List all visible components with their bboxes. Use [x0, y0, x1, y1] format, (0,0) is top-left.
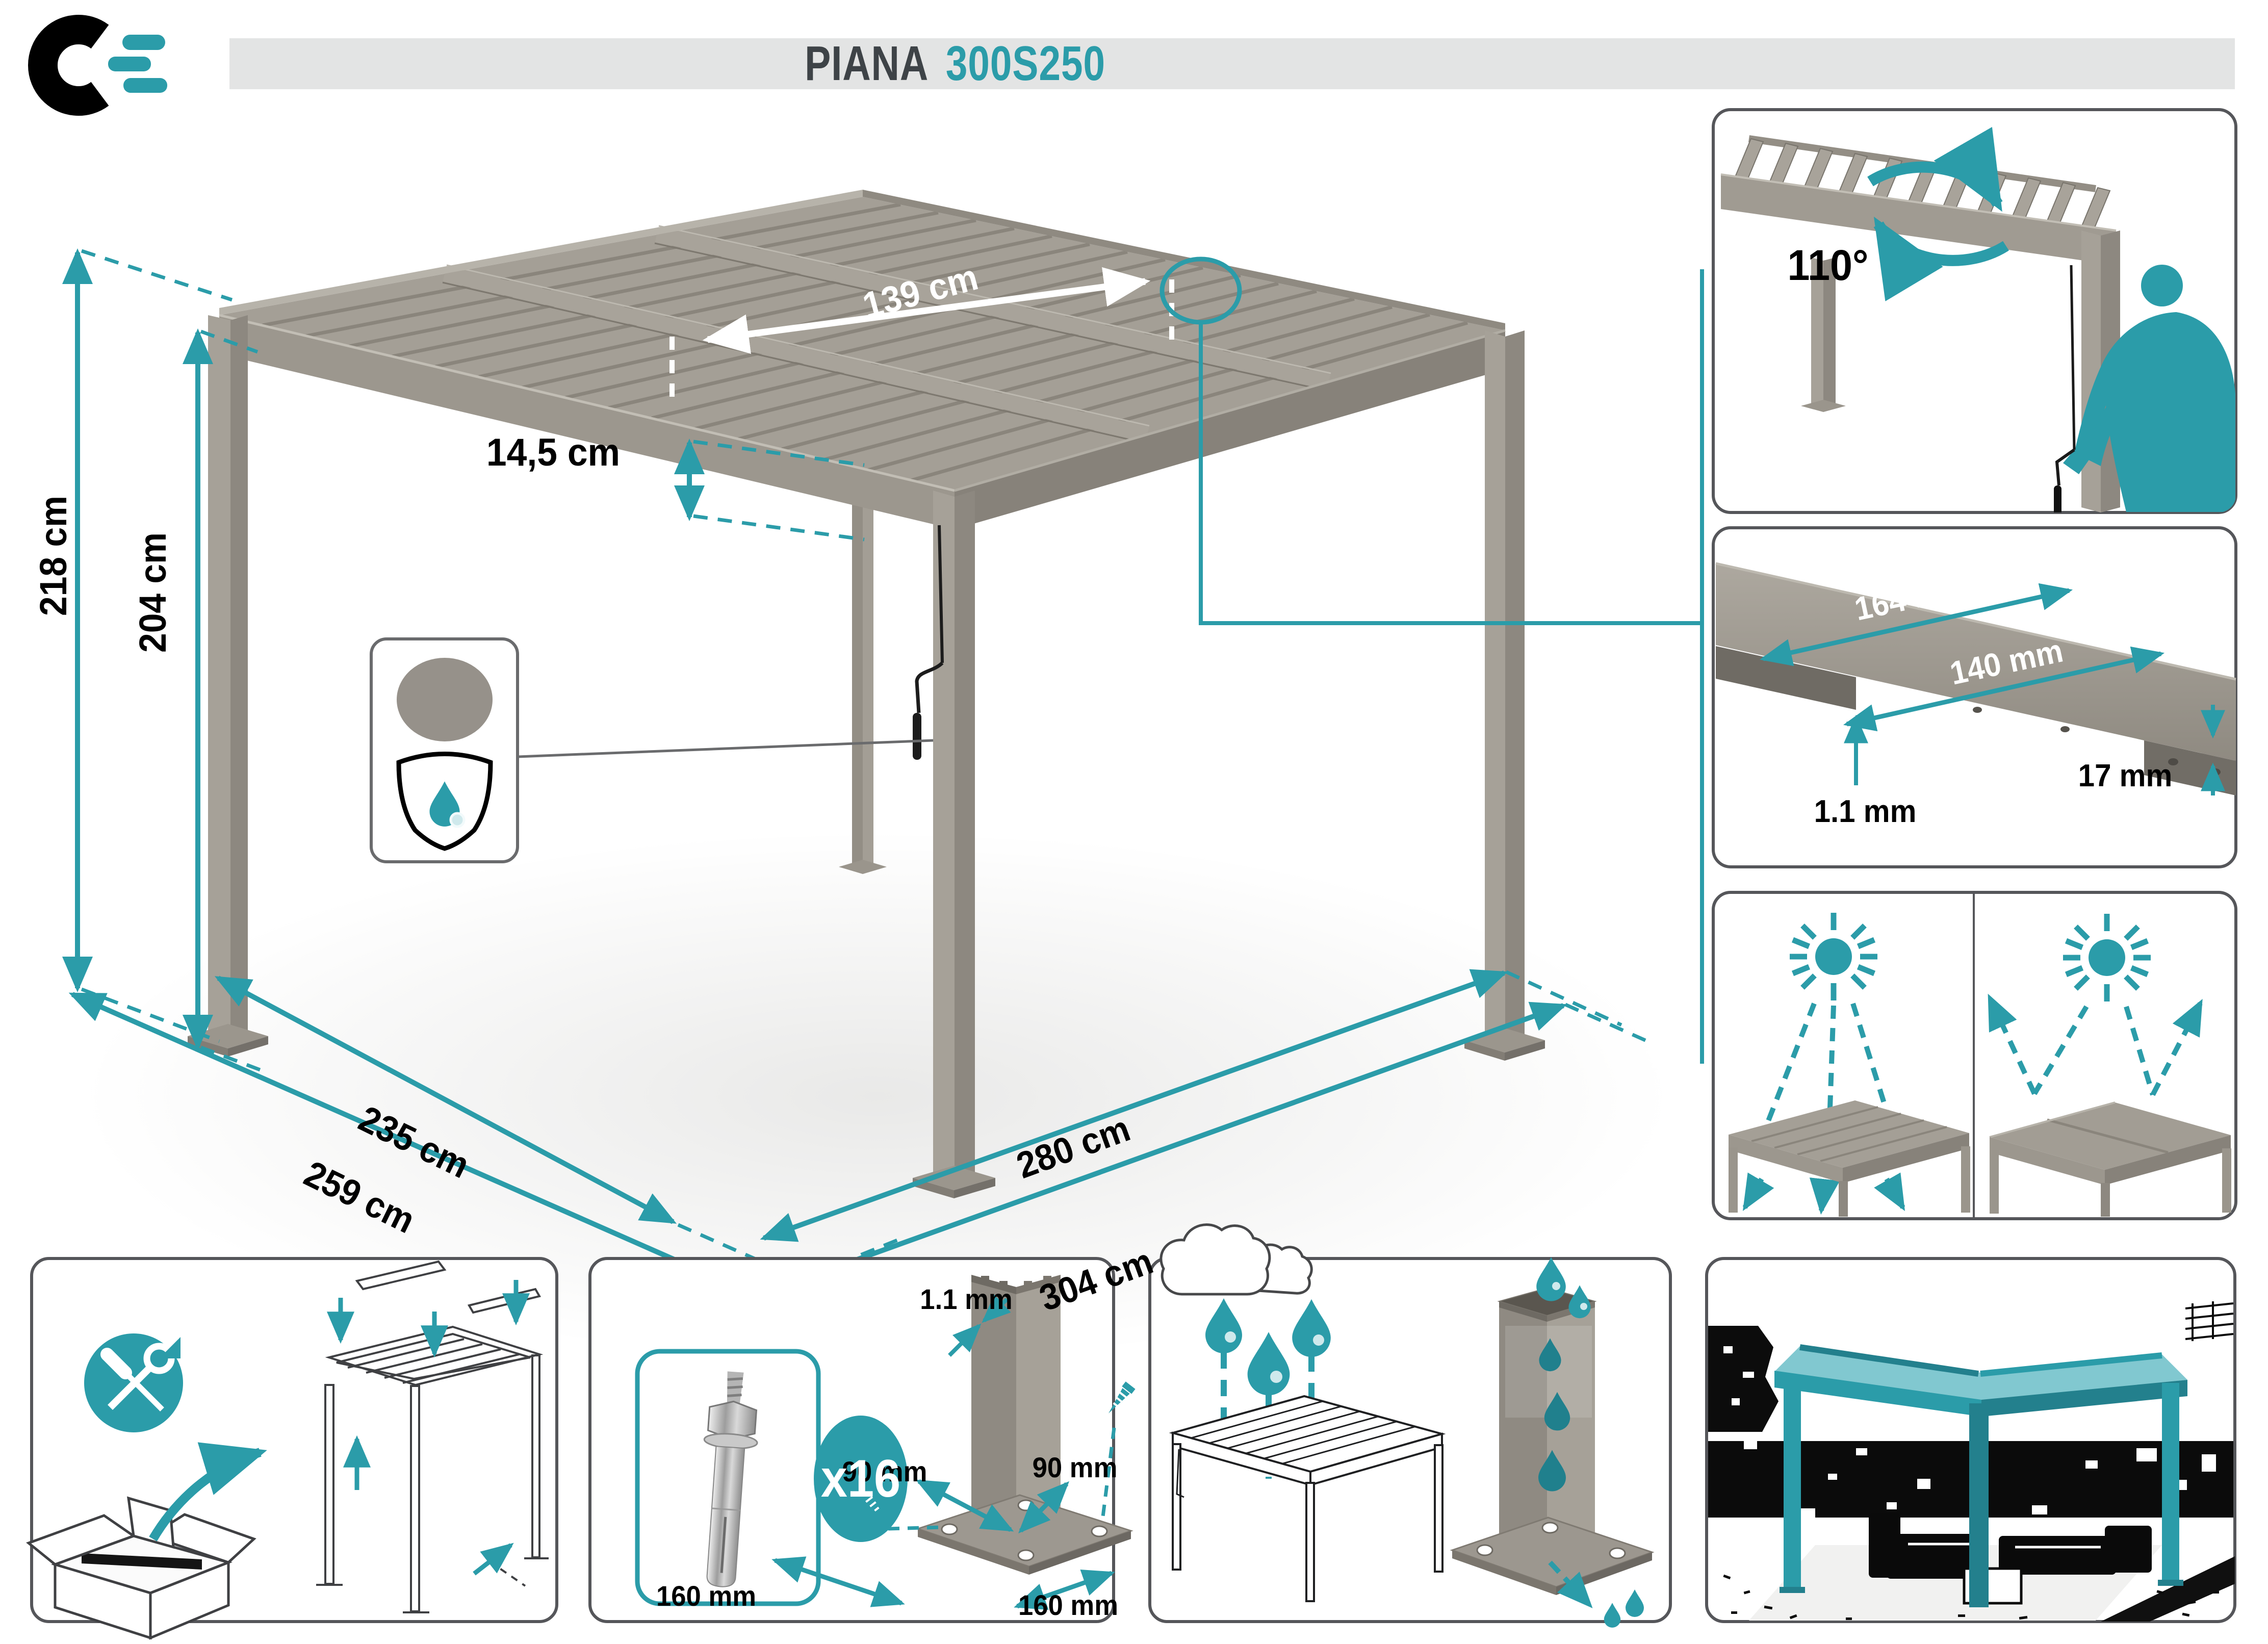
rotation-angle: 110°: [1788, 244, 1869, 287]
sheet-artwork: [0, 0, 2268, 1644]
logo-bar-middle: [108, 57, 151, 71]
sun-icon: [1790, 913, 1877, 1000]
page-title: PIANA 300S250: [805, 36, 1105, 92]
panel-assembly: [29, 1258, 557, 1638]
color-swatch: [397, 658, 493, 741]
brand-logo: [43, 30, 167, 101]
finish-badge: [371, 639, 933, 862]
anchor-plate-left: 160 mm: [656, 1582, 756, 1610]
anchor-plate-right: 160 mm: [1018, 1591, 1118, 1620]
logo-bar-top: [122, 35, 165, 50]
sun-icon: [2063, 914, 2151, 1001]
panel-photo: [1707, 1258, 2235, 1622]
anchor-wall-thickness: 1.1 mm: [920, 1285, 1012, 1314]
profile-edge-height: 17 mm: [2078, 760, 2173, 792]
profile-thickness: 1.1 mm: [1814, 796, 1917, 828]
dim-beam-height: 14,5 cm: [486, 433, 620, 472]
bolt-count: x16: [821, 1452, 900, 1505]
logo-bar-bottom: [123, 78, 167, 93]
product-model: 300S250: [946, 36, 1105, 91]
panel-drainage: [1150, 1225, 1670, 1628]
product-name: PIANA: [805, 36, 927, 91]
dim-height-clear: 204 cm: [134, 532, 172, 653]
dim-height-total: 218 cm: [35, 496, 72, 616]
panel-louver-profile: [1713, 528, 2236, 867]
title-bar: [229, 38, 2235, 89]
panel-rotation: [1713, 110, 2236, 518]
panel-sun-positions: [1713, 892, 2236, 1219]
spec-sheet: PIANA 300S250 218 cm 204 cm 14,5 cm 139 …: [0, 0, 2268, 1644]
anchor-post-right: 90 mm: [1033, 1453, 1118, 1482]
